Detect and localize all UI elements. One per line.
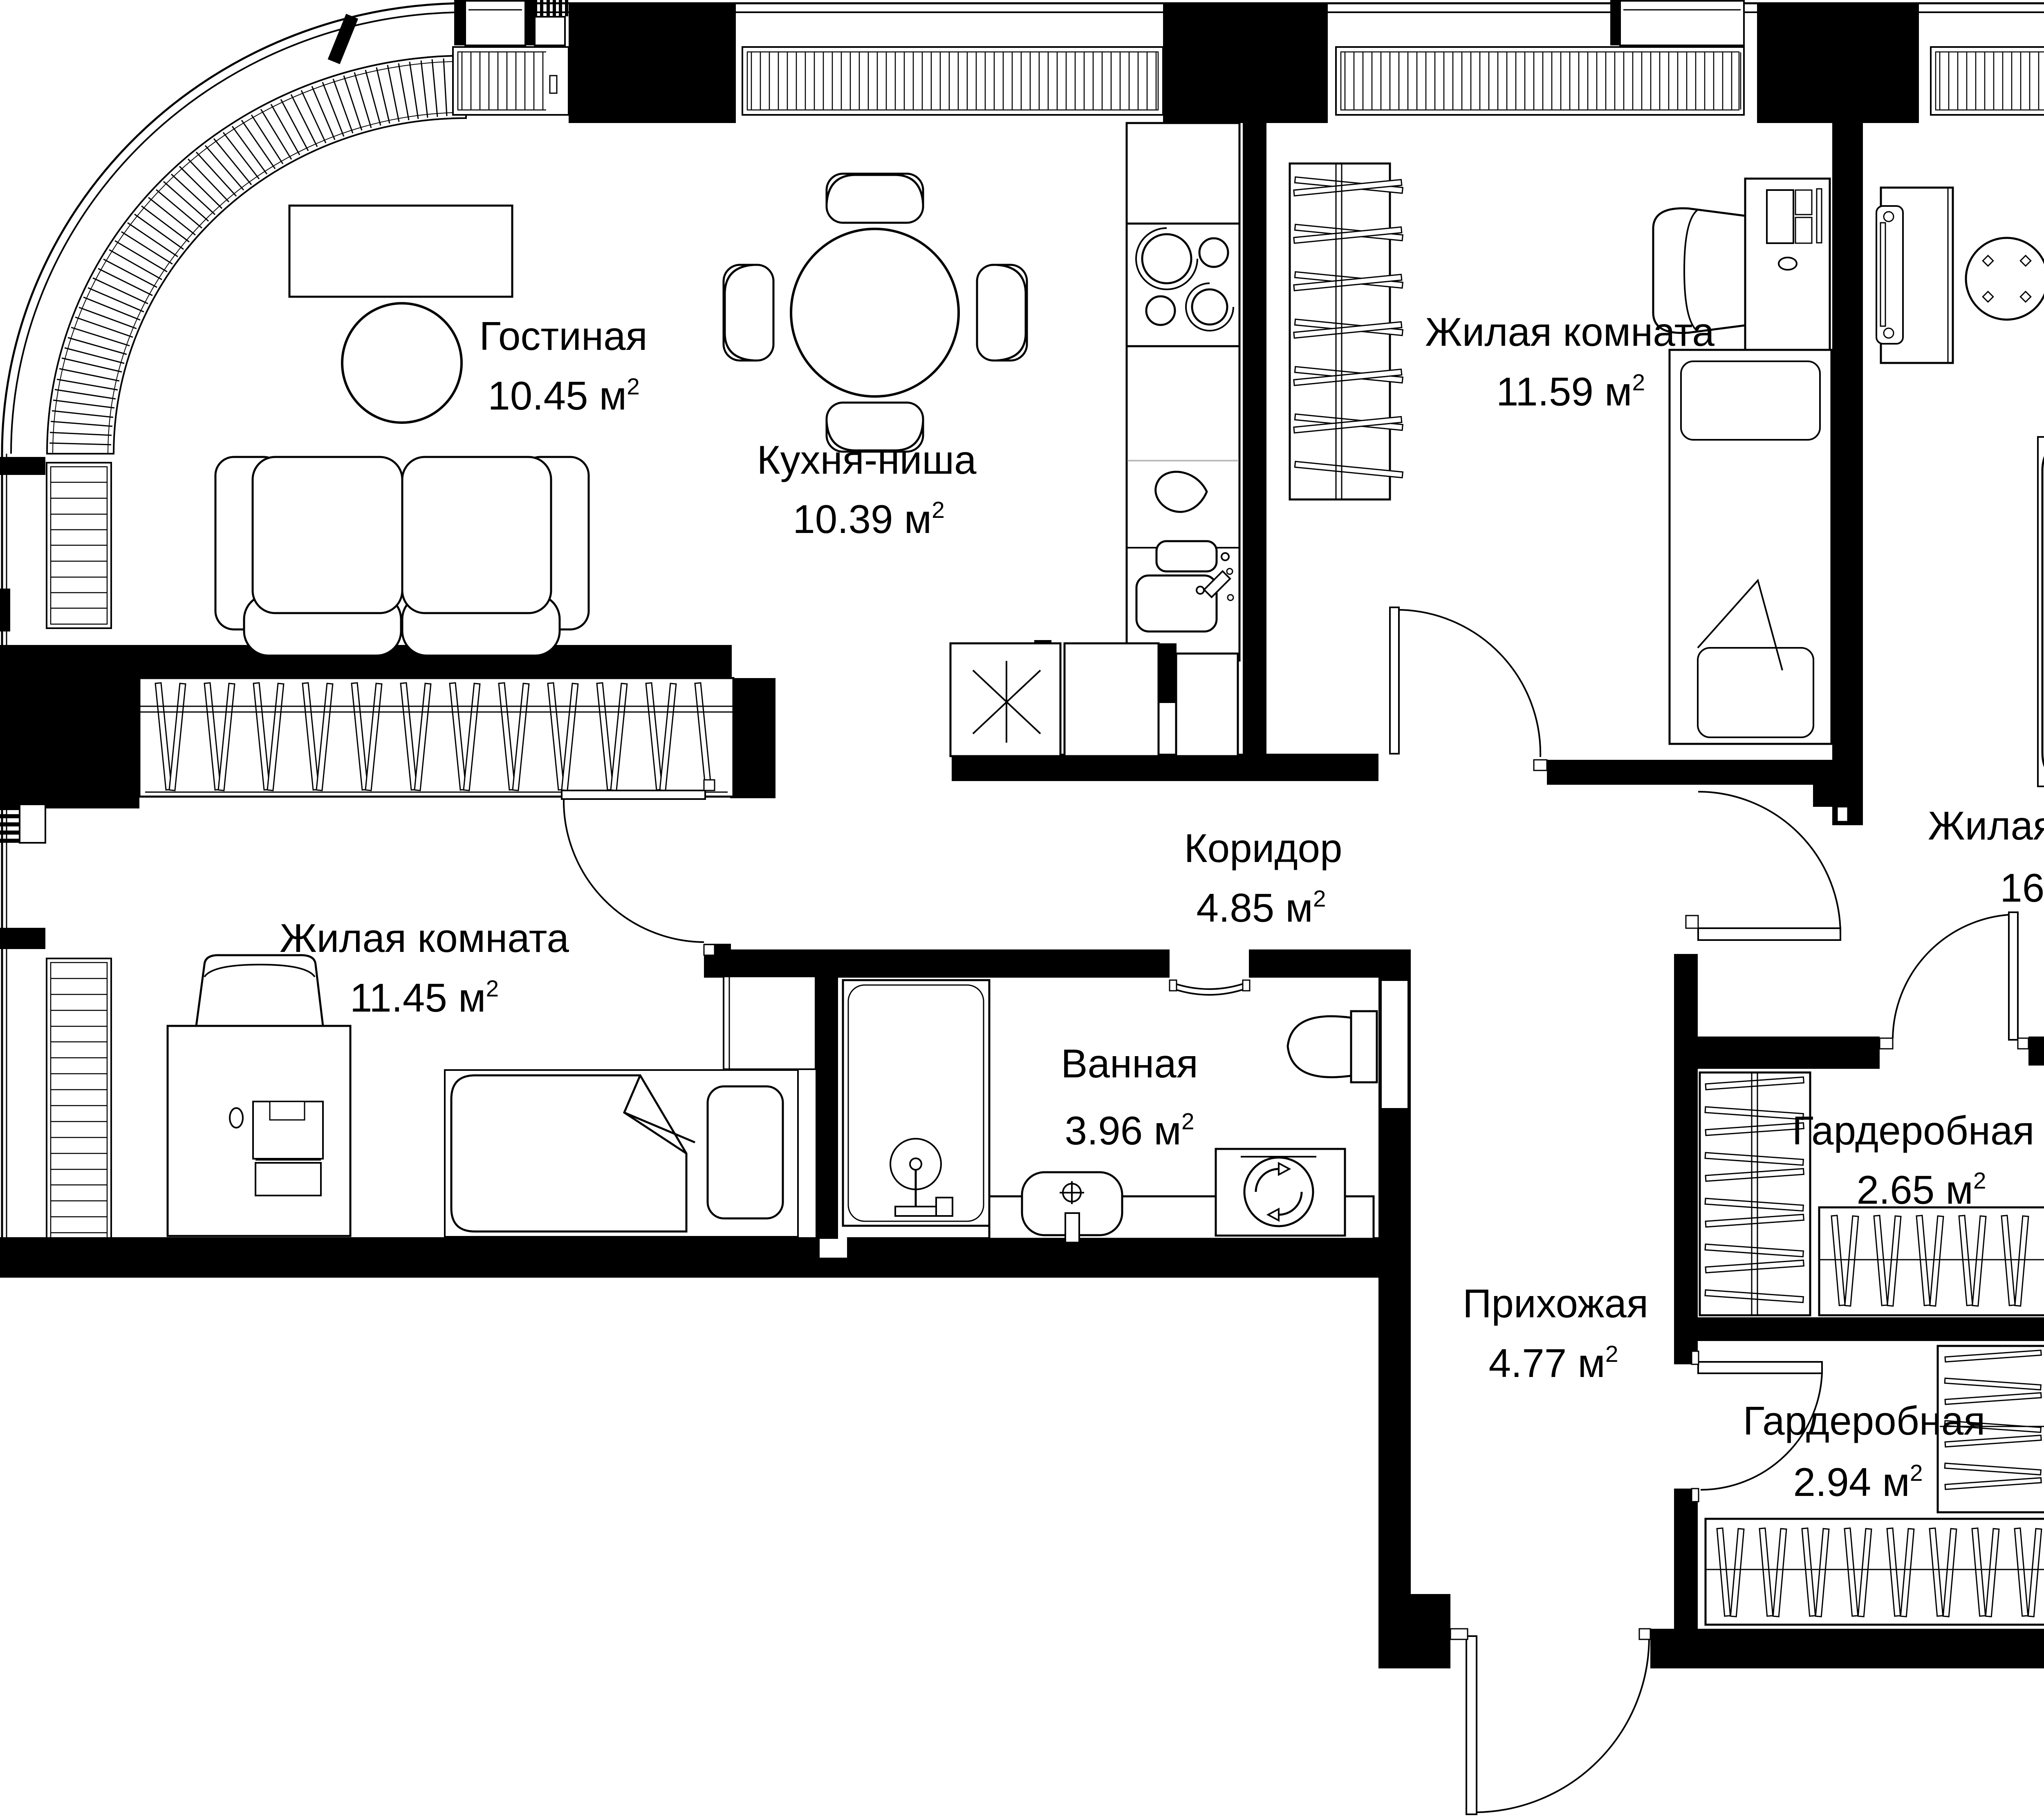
svg-text:Жилая комната: Жилая комната [280,916,569,960]
svg-text:Жилая комната: Жилая комната [1928,803,2044,848]
svg-text:16.40 м2: 16.40 м2 [2000,865,2044,910]
svg-text:10.39 м2: 10.39 м2 [793,497,945,542]
svg-text:Ванная: Ванная [1061,1041,1198,1086]
svg-text:Коридор: Коридор [1184,826,1342,871]
svg-text:Гостиная: Гостиная [479,313,647,358]
svg-text:Прихожая: Прихожая [1463,1281,1648,1326]
svg-text:10.45 м2: 10.45 м2 [488,373,640,418]
svg-text:2.65 м2: 2.65 м2 [1856,1167,1986,1212]
svg-text:2.94 м2: 2.94 м2 [1793,1460,1923,1505]
svg-text:Кухня-ниша: Кухня-ниша [757,437,977,482]
svg-text:Гардеробная: Гардеробная [1792,1108,2035,1153]
svg-text:4.77 м2: 4.77 м2 [1488,1341,1618,1386]
svg-text:Гардеробная: Гардеробная [1743,1398,1986,1443]
svg-text:4.85 м2: 4.85 м2 [1196,885,1326,930]
svg-text:11.45 м2: 11.45 м2 [350,975,499,1020]
svg-text:Жилая комната: Жилая комната [1425,309,1715,354]
svg-text:11.59 м2: 11.59 м2 [1496,369,1645,414]
svg-text:3.96 м2: 3.96 м2 [1065,1108,1194,1153]
